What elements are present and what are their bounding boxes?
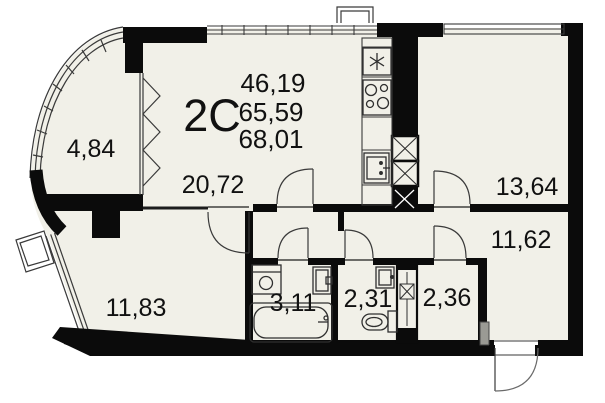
area-storage: 2,36 <box>423 284 472 312</box>
area-hallway: 11,62 <box>491 226 552 254</box>
entrance-door-icon <box>489 340 541 391</box>
area-bathroom: 3,11 <box>270 289 317 317</box>
area-wc: 2,31 <box>344 285 393 313</box>
plan-value-3: 68,01 <box>238 124 303 154</box>
plan-type-label: 2C <box>183 90 241 141</box>
wall-pier <box>92 197 120 238</box>
plan-value-2: 65,59 <box>238 97 303 127</box>
area-room-top-right: 13,64 <box>496 173 559 201</box>
plan-value-1: 46,19 <box>240 68 305 98</box>
vent-shaft-small-icon <box>397 258 417 342</box>
top-wall-block <box>377 23 443 37</box>
area-living-kitchen: 20,72 <box>182 171 245 199</box>
area-balcony: 4,84 <box>67 135 116 163</box>
top-window-band <box>207 25 377 35</box>
french-balcony-rail <box>337 7 373 23</box>
balcony-bottom-wall <box>40 194 143 211</box>
area-room-bottom-left: 11,83 <box>106 294 167 322</box>
floorplan-drawing: 2C 46,19 65,59 68,01 4,84 20,72 13,64 11… <box>0 0 605 403</box>
vent-shaft-icon <box>392 136 418 212</box>
kitchen-room-wall <box>392 37 418 136</box>
floorplan-page: 2C 46,19 65,59 68,01 4,84 20,72 13,64 11… <box>0 0 605 403</box>
wall-stub <box>338 211 344 231</box>
right-outer-wall <box>568 23 583 356</box>
electrical-panel <box>480 322 489 345</box>
